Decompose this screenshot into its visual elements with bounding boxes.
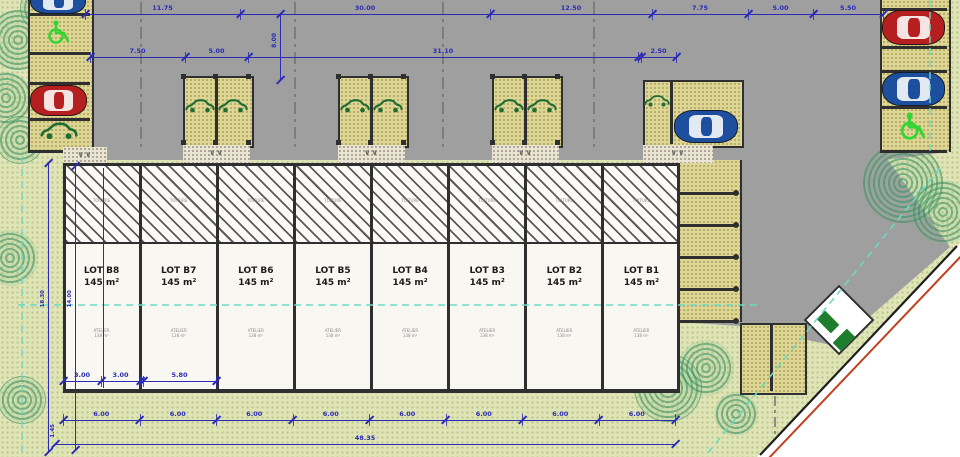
- dim-value: 6.00: [617, 410, 657, 418]
- dim-extension: [216, 414, 217, 426]
- dim-total-value: 48.35: [340, 434, 390, 442]
- dim-value: 6.00: [540, 410, 580, 418]
- dim-extension: [490, 9, 491, 20]
- dim-value: 5.80: [155, 371, 205, 379]
- dim-value: 5.00: [192, 47, 242, 55]
- dim-extension: [90, 52, 91, 63]
- dim-value: 18.30: [40, 290, 46, 307]
- dim-value: 14.00: [67, 290, 73, 307]
- dim-value: 6.00: [158, 410, 198, 418]
- dimension-line-top2: [90, 57, 638, 58]
- dimension-line-left2: [75, 166, 76, 450]
- dimension-line-d250: [641, 57, 676, 58]
- dim-value: 6.00: [464, 410, 504, 418]
- dim-value: 2.50: [634, 47, 684, 55]
- dim-extension: [140, 414, 141, 426]
- dim-value: 5.50: [823, 4, 873, 12]
- dimension-line-800: [280, 14, 281, 80]
- dim-value: 6.00: [311, 410, 351, 418]
- dim-extension: [248, 52, 249, 63]
- site-plan: ∨∨∨∨∨∨∨∨∨∨TOITURELOT B8145 m²ATELIER 138…: [0, 0, 960, 457]
- dim-value: 11.75: [138, 4, 188, 12]
- dim-extension: [85, 9, 86, 20]
- dim-extension: [240, 9, 241, 20]
- dim-value: 31.10: [418, 47, 468, 55]
- dim-extension: [813, 9, 814, 20]
- dim-value: 7.75: [675, 4, 725, 12]
- dim-corner-value: 1.45: [50, 424, 56, 438]
- dim-value: 7.50: [113, 47, 163, 55]
- dim-value: 6.00: [387, 410, 427, 418]
- dim-extension: [216, 376, 217, 387]
- dim-extension: [522, 414, 523, 426]
- dim-value: 12.50: [546, 4, 596, 12]
- dim-extension: [63, 414, 64, 426]
- dimension-line-left1: [48, 163, 49, 452]
- dim-extension: [293, 414, 294, 426]
- dim-extension: [185, 52, 186, 63]
- dim-value: 6.00: [234, 410, 274, 418]
- dim-extension: [748, 9, 749, 20]
- dimension-line-total: [55, 444, 675, 445]
- dim-extension: [369, 414, 370, 426]
- dim-extension: [652, 9, 653, 20]
- dim-extension: [446, 414, 447, 426]
- dimension-line-top1: [85, 14, 883, 15]
- dim-value: 5.00: [756, 4, 806, 12]
- dim-value: 8.00: [271, 33, 278, 48]
- dim-value: 6.00: [81, 410, 121, 418]
- dim-extension: [599, 414, 600, 426]
- dim-value: 30.00: [340, 4, 390, 12]
- lot-measure-line: [103, 168, 104, 388]
- dim-extension: [883, 9, 884, 20]
- annotation-layer: 11.7530.0012.507.755.005.507.505.0031.10…: [0, 0, 960, 457]
- dim-extension: [675, 414, 676, 426]
